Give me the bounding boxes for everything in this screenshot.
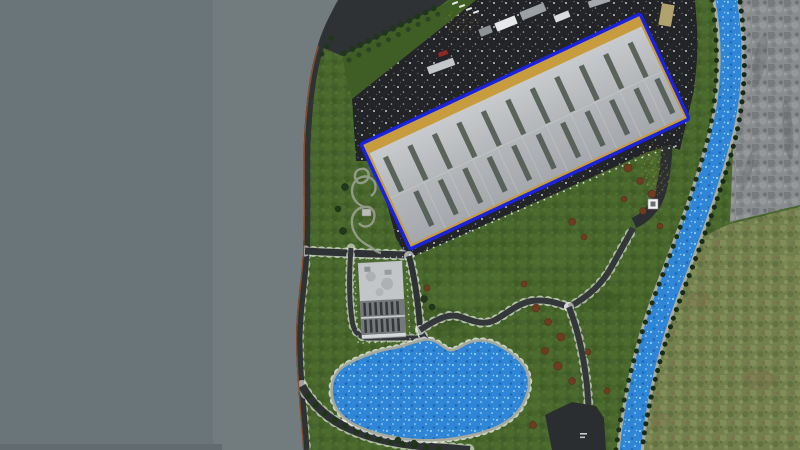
moss-patch xyxy=(650,413,670,427)
bush xyxy=(569,378,576,385)
bush xyxy=(554,362,562,370)
tree xyxy=(429,304,435,310)
bush xyxy=(604,388,610,394)
road-marking xyxy=(580,437,585,439)
utility-box-inner xyxy=(651,202,656,207)
bush xyxy=(532,304,540,312)
bush xyxy=(621,196,627,202)
bush xyxy=(637,178,644,185)
void-left xyxy=(0,0,213,450)
scene-svg[interactable] xyxy=(0,0,800,450)
connector-road xyxy=(305,251,408,255)
bush xyxy=(557,333,565,341)
structures-layer xyxy=(362,209,371,216)
bush xyxy=(657,223,663,229)
tree xyxy=(340,228,347,235)
tree xyxy=(342,184,349,191)
moss-patch xyxy=(688,292,712,308)
bush xyxy=(581,234,587,240)
office-roof-unit xyxy=(384,269,391,274)
bush xyxy=(521,281,527,287)
bush xyxy=(624,164,632,172)
fallen-leaves xyxy=(444,10,480,34)
park-structure xyxy=(362,209,371,216)
bush xyxy=(640,208,647,215)
moss-patch xyxy=(744,370,776,390)
tree xyxy=(395,437,401,443)
office-roof-unit xyxy=(364,267,370,272)
bush xyxy=(648,190,656,198)
bush xyxy=(585,349,591,355)
tree xyxy=(421,296,428,303)
moss-patch xyxy=(782,256,798,268)
map-viewport[interactable] xyxy=(0,0,800,450)
bush xyxy=(542,348,549,355)
road-marking xyxy=(580,433,587,435)
bush xyxy=(569,219,576,226)
tree xyxy=(335,206,341,212)
bush xyxy=(530,422,537,429)
bush xyxy=(545,319,552,326)
bush xyxy=(424,285,430,291)
tree xyxy=(411,440,417,446)
void-bottom-strip xyxy=(0,444,222,450)
office-building xyxy=(354,257,410,344)
